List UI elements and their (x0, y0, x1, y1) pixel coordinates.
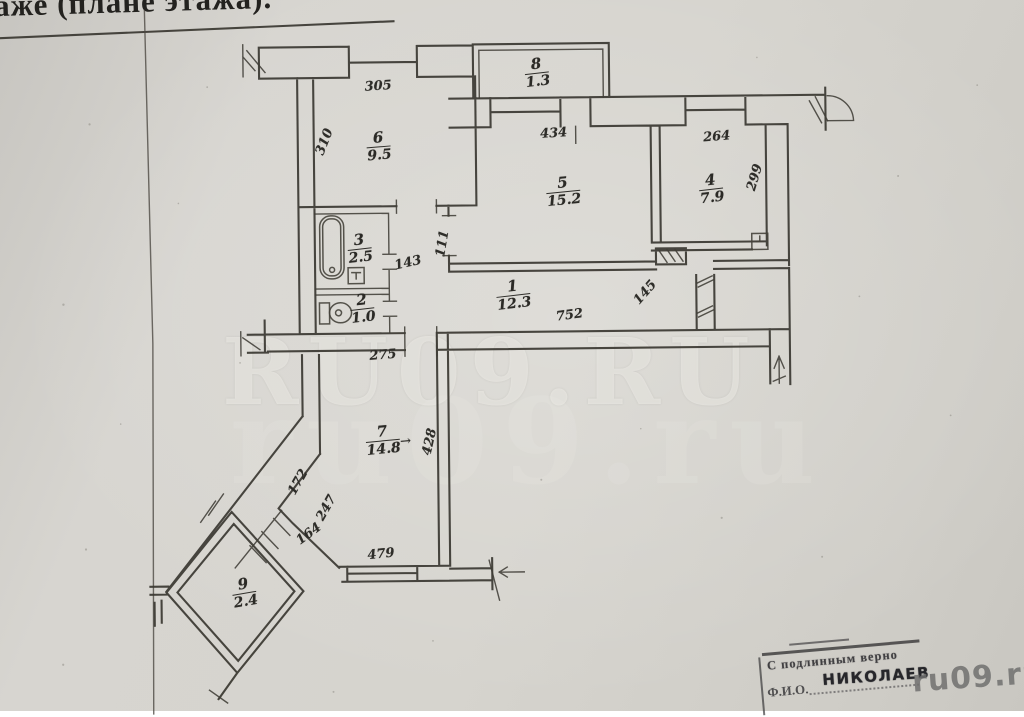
entrance-arrow-icon (773, 356, 785, 383)
certification-stamp: С подлинным верно Ф.И.О. Николаев (757, 631, 933, 717)
toilet-icon (319, 303, 351, 324)
walls-exterior (145, 41, 832, 700)
bathtub-icon (320, 216, 345, 279)
stamp-fio-label: Ф.И.О. (767, 681, 809, 701)
scanned-floor-plan-page: аже (плане этажа). RU09.RU ru09.ru (0, 0, 1024, 711)
sink-icon (348, 268, 364, 284)
floor-plan-drawing (0, 0, 1024, 716)
walls-inner-and-ticks (196, 39, 834, 704)
door-swing-arc (827, 95, 853, 120)
title-underline (0, 21, 394, 38)
